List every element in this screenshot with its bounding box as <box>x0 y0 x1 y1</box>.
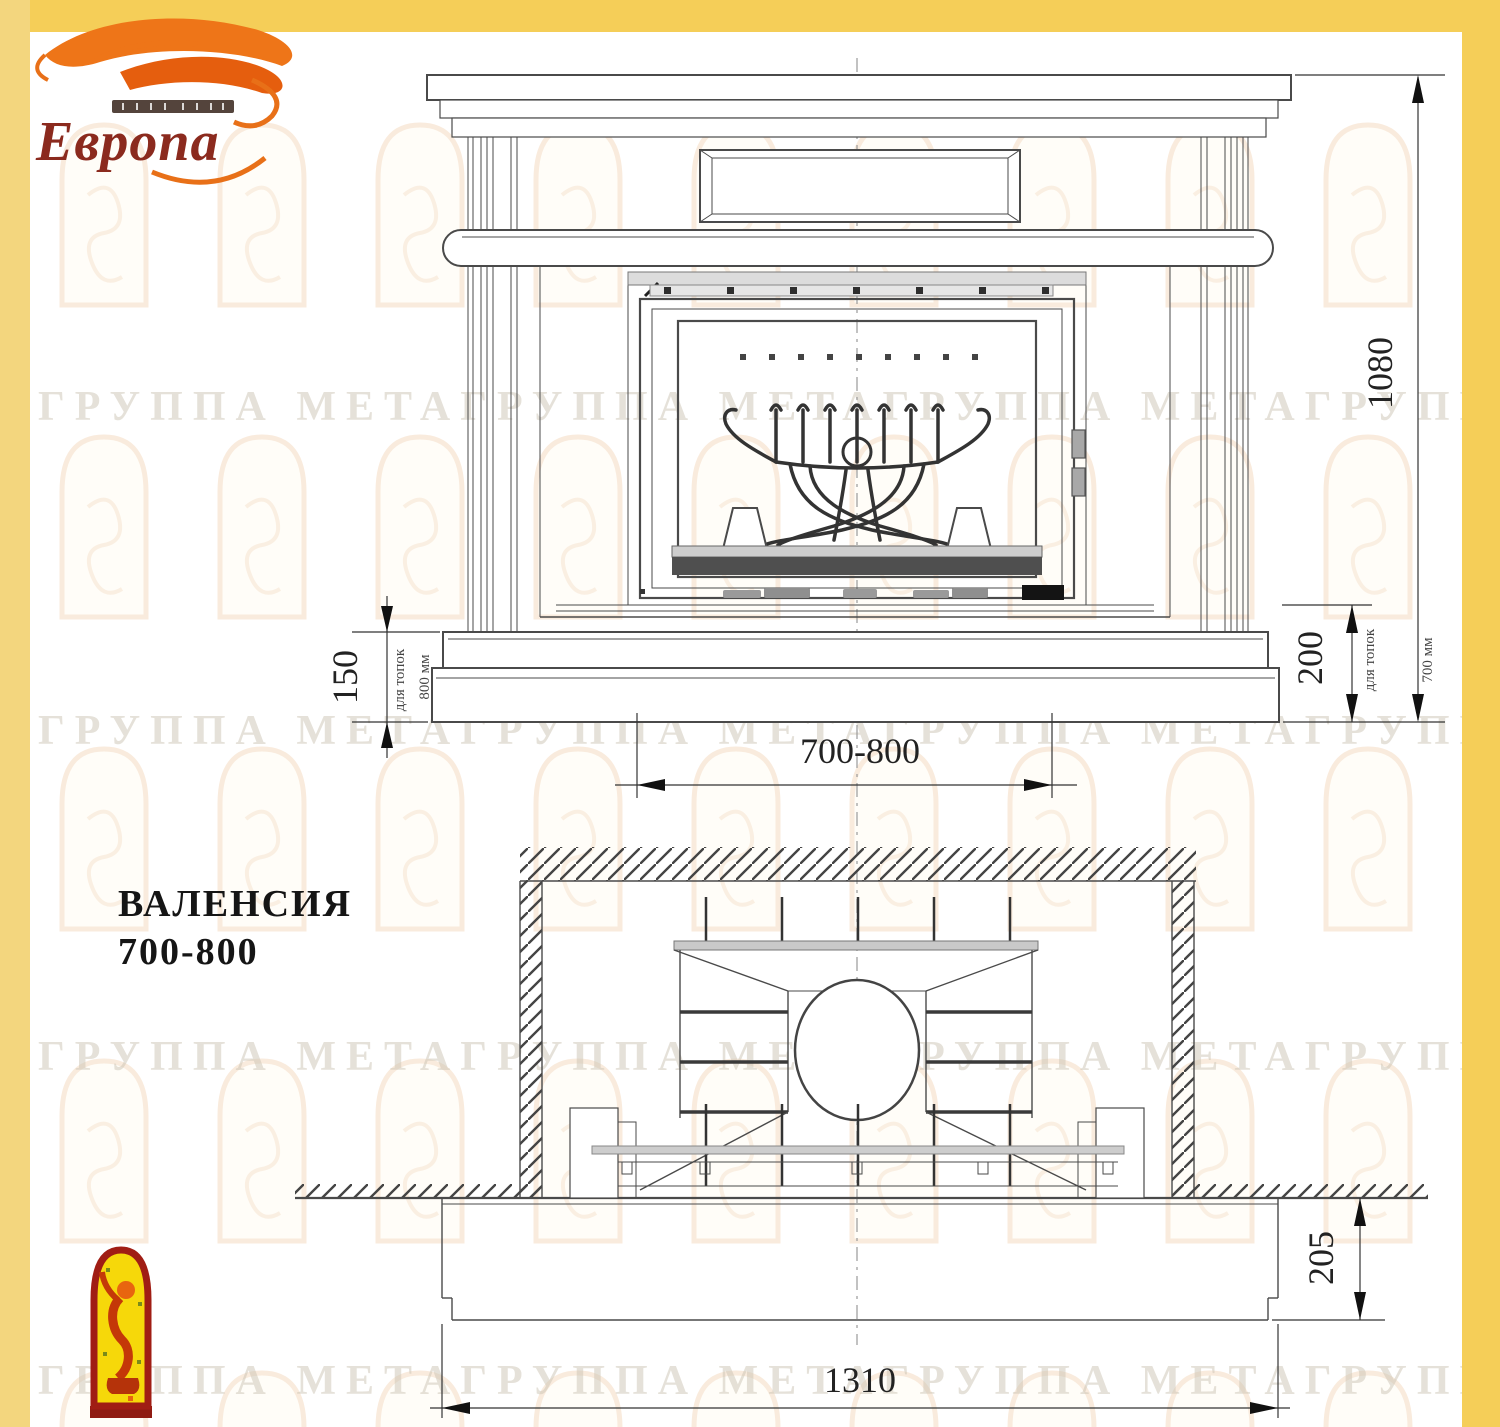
wall-left <box>520 881 542 1198</box>
note-left-size: 800 мм <box>417 654 433 700</box>
logo-wordmark: Европа <box>35 111 220 173</box>
mantel-shelf <box>427 75 1291 100</box>
frame-left <box>0 0 30 1427</box>
dim-base-width-label: 1310 <box>824 1360 896 1400</box>
mantel-fascia <box>452 118 1266 137</box>
note-left-firebox: для топок <box>392 648 408 711</box>
title-model: ВАЛЕНСИЯ <box>118 883 352 925</box>
hearth-steps <box>432 632 1279 722</box>
grate-base <box>672 546 1042 557</box>
frame-right <box>1462 0 1500 1427</box>
wall-back <box>520 847 1196 881</box>
dim-hearth-right-label: 200 <box>1290 631 1330 685</box>
dim-firebox-width-label: 700-800 <box>800 731 920 771</box>
ash-pan <box>672 557 1042 575</box>
dim-base-depth-label: 205 <box>1301 1231 1341 1285</box>
wall-right <box>1172 881 1194 1198</box>
vent-strip <box>650 285 1053 296</box>
page: ГРУППА МЕТАГРУППА МЕТАГРУППА МЕТАГРУППА … <box>0 0 1500 1427</box>
watermark-band: ГРУППА МЕТАГРУППА МЕТАГРУППА МЕТАГРУППА … <box>38 384 1500 430</box>
note-right-firebox: для топок <box>1362 628 1378 691</box>
door-handle <box>1072 430 1085 458</box>
drawing-sheet: ГРУППА МЕТАГРУППА МЕТАГРУППА МЕТАГРУППА … <box>0 0 1500 1427</box>
watermark-band: ГРУППА МЕТАГРУППА МЕТАГРУППА МЕТАГРУППА … <box>38 1358 1500 1404</box>
mantel-molding <box>440 100 1278 118</box>
dim-height-label: 1080 <box>1360 337 1400 409</box>
flue-circle <box>795 980 919 1120</box>
belt-molding <box>443 230 1273 266</box>
dim-hearth-left-label: 150 <box>325 650 365 704</box>
corner-emblem <box>90 1250 152 1418</box>
watermark-band: ГРУППА МЕТАГРУППА МЕТАГРУППА МЕТАГРУППА … <box>38 1034 1500 1080</box>
title-size: 700-800 <box>118 931 259 973</box>
frieze-panel <box>700 150 1020 222</box>
note-right-size: 700 мм <box>1420 637 1436 683</box>
